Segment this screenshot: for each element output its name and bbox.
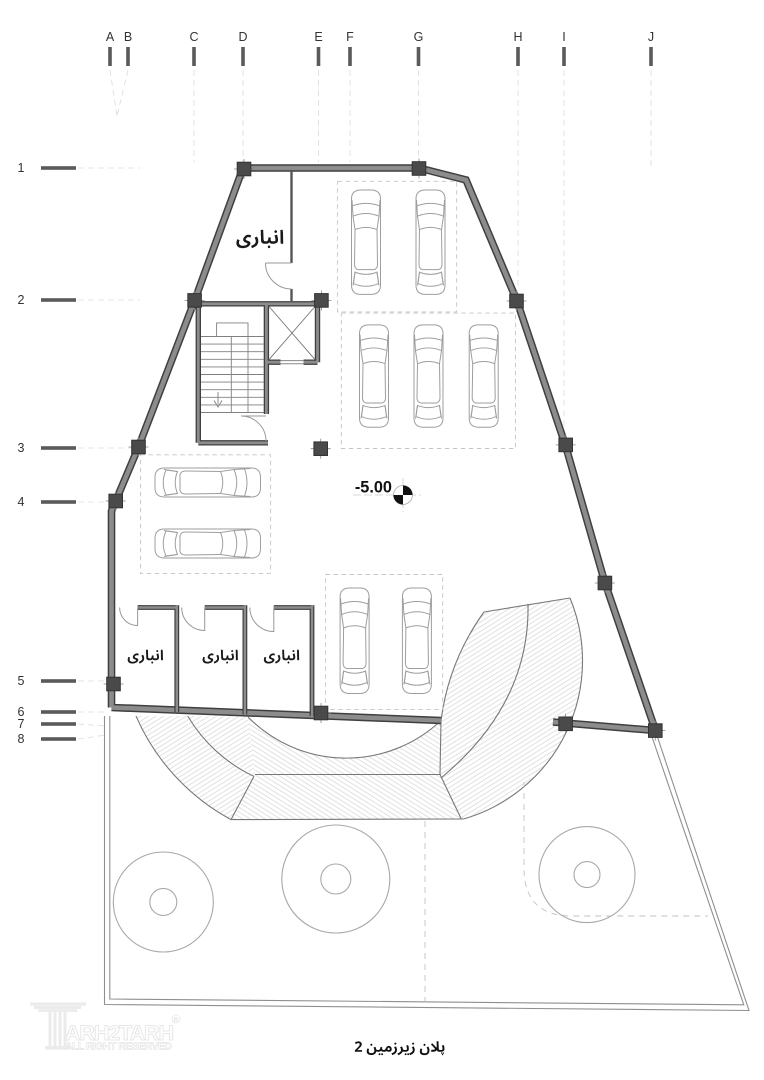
svg-text:I: I [562, 30, 565, 44]
svg-text:-5.00: -5.00 [355, 479, 392, 497]
svg-text:D: D [238, 30, 247, 44]
svg-text:C: C [189, 30, 198, 44]
svg-text:7: 7 [18, 717, 25, 731]
svg-text:4: 4 [18, 495, 25, 509]
svg-text:B: B [124, 30, 132, 44]
svg-text:A: A [106, 30, 115, 44]
svg-text:J: J [648, 30, 654, 44]
svg-text:E: E [314, 30, 322, 44]
svg-text:3: 3 [18, 441, 25, 455]
svg-text:G: G [414, 30, 424, 44]
svg-text:2: 2 [18, 293, 25, 307]
svg-text:5: 5 [18, 674, 25, 688]
svg-text:F: F [346, 30, 354, 44]
svg-text:ALL RIGHT RESERVED: ALL RIGHT RESERVED [65, 1041, 172, 1053]
svg-text:8: 8 [18, 732, 25, 746]
svg-text:H: H [513, 30, 522, 44]
svg-text:1: 1 [18, 161, 25, 175]
svg-text:R: R [174, 1018, 179, 1024]
